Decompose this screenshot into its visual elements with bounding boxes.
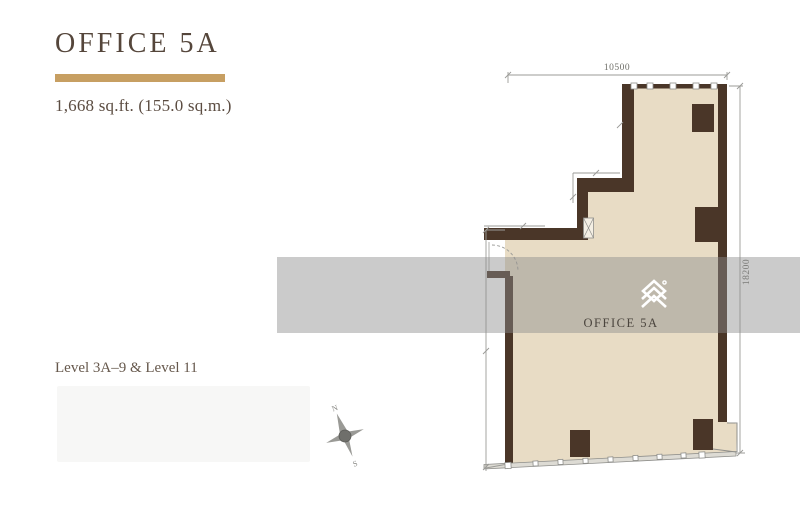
unit-levels-text: Level 3A–9 & Level 11 [55, 360, 198, 377]
gold-divider [55, 74, 225, 82]
watermark-band [277, 257, 800, 333]
dimension-width-label: 10500 [604, 63, 630, 73]
unit-area-text: 1,668 sq.ft. (155.0 sq.m.) [55, 96, 232, 116]
keyplan-placeholder [57, 386, 310, 462]
compass-north-label: N [331, 403, 340, 414]
service-shaft [584, 218, 594, 238]
page-title: OFFICE 5A [55, 28, 220, 60]
floorplan-page: 10500 18200 OFFICE 5A N S OFFICE 5A 1,66… [0, 0, 800, 514]
compass-south-label: S [351, 459, 358, 469]
unit-label: OFFICE 5A [584, 316, 659, 330]
compass-rose: N S [315, 397, 376, 475]
